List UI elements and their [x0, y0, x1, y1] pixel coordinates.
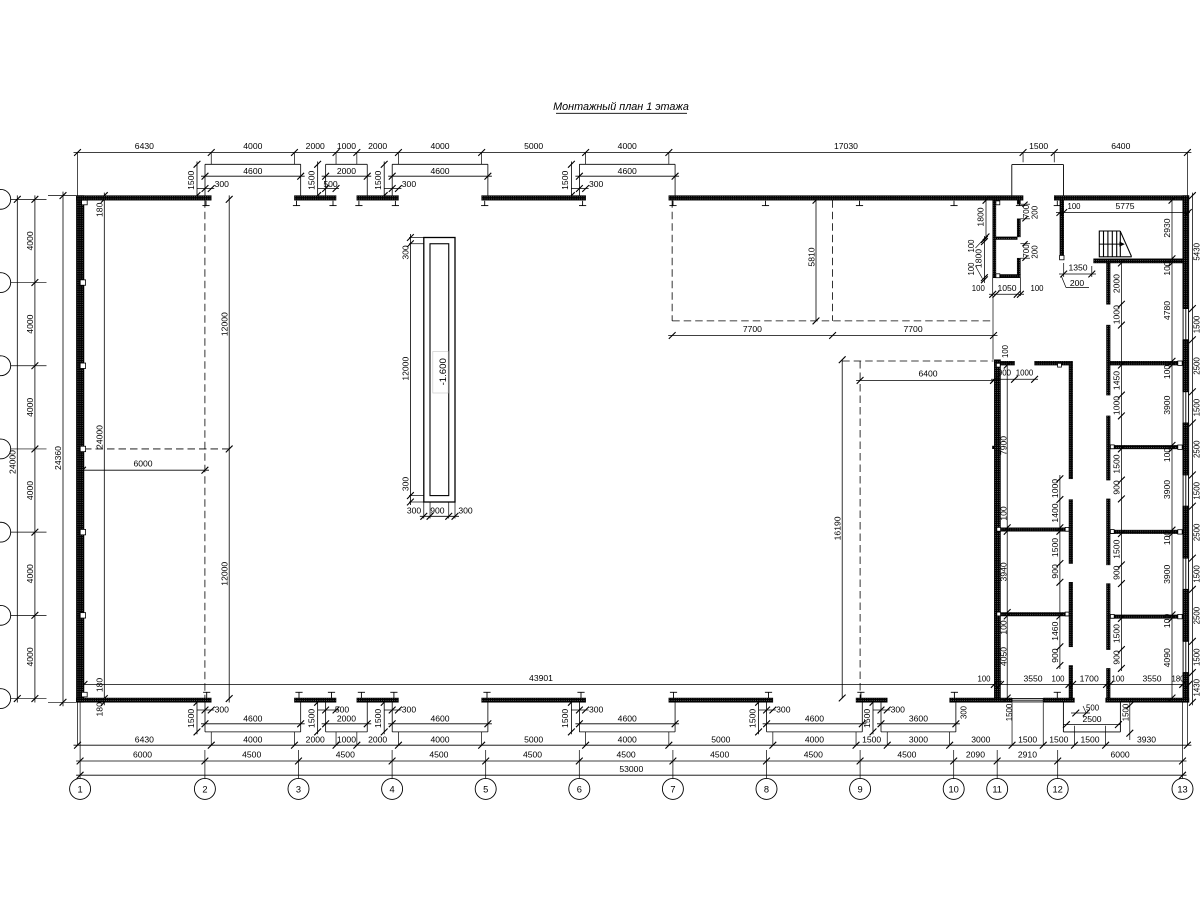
svg-text:2090: 2090 — [966, 750, 985, 760]
svg-text:300: 300 — [776, 704, 791, 714]
svg-text:1000: 1000 — [337, 141, 356, 151]
svg-text:2500: 2500 — [1192, 440, 1200, 458]
svg-text:6430: 6430 — [135, 141, 154, 151]
svg-text:2000: 2000 — [306, 734, 325, 744]
svg-text:Монтажный план 1 этажа: Монтажный план 1 этажа — [553, 101, 689, 113]
svg-text:1000: 1000 — [1112, 305, 1122, 324]
svg-text:1500: 1500 — [1050, 538, 1060, 557]
svg-text:4000: 4000 — [25, 647, 35, 666]
svg-text:1400: 1400 — [1050, 503, 1060, 522]
svg-text:180: 180 — [95, 202, 105, 217]
svg-text:4500: 4500 — [336, 750, 355, 760]
svg-text:100: 100 — [977, 674, 991, 683]
svg-text:2000: 2000 — [1112, 274, 1122, 293]
svg-text:-1.600: -1.600 — [438, 358, 449, 385]
svg-text:4780: 4780 — [1162, 301, 1172, 320]
svg-text:1350: 1350 — [1068, 262, 1087, 272]
svg-text:4600: 4600 — [618, 166, 637, 176]
svg-text:500: 500 — [335, 704, 350, 714]
svg-text:1500: 1500 — [1192, 481, 1200, 499]
svg-text:1450: 1450 — [1112, 371, 1122, 390]
svg-text:100: 100 — [1051, 674, 1065, 683]
svg-text:180: 180 — [95, 702, 105, 717]
svg-text:300: 300 — [215, 179, 230, 189]
svg-text:4000: 4000 — [618, 734, 637, 744]
svg-text:1430: 1430 — [1192, 678, 1200, 696]
svg-text:900: 900 — [1112, 480, 1122, 495]
svg-text:100: 100 — [972, 284, 986, 293]
svg-text:1500: 1500 — [1005, 703, 1014, 721]
svg-text:4000: 4000 — [25, 564, 35, 583]
svg-text:4600: 4600 — [243, 166, 262, 176]
svg-text:43901: 43901 — [529, 673, 553, 683]
svg-text:4090: 4090 — [1162, 648, 1172, 667]
svg-text:12: 12 — [1053, 784, 1063, 794]
svg-text:2500: 2500 — [1192, 357, 1200, 375]
svg-text:1460: 1460 — [1050, 621, 1060, 640]
svg-text:200: 200 — [1031, 205, 1040, 219]
svg-text:3900: 3900 — [1162, 565, 1172, 584]
svg-text:5000: 5000 — [524, 734, 543, 744]
svg-text:4000: 4000 — [243, 734, 262, 744]
svg-text:100: 100 — [1162, 531, 1172, 546]
svg-text:4000: 4000 — [618, 141, 637, 151]
svg-text:4000: 4000 — [25, 314, 35, 333]
svg-text:2930: 2930 — [1162, 218, 1172, 237]
svg-text:300: 300 — [401, 477, 411, 492]
svg-text:2000: 2000 — [337, 713, 356, 723]
svg-text:100: 100 — [1111, 674, 1125, 683]
svg-text:500: 500 — [1086, 704, 1100, 713]
svg-text:1500: 1500 — [1049, 734, 1068, 744]
svg-text:11: 11 — [992, 784, 1002, 794]
svg-text:4600: 4600 — [243, 713, 262, 723]
svg-text:4000: 4000 — [25, 231, 35, 250]
svg-text:1: 1 — [78, 784, 83, 794]
svg-text:2000: 2000 — [368, 734, 387, 744]
svg-text:4000: 4000 — [25, 398, 35, 417]
svg-text:4000: 4000 — [805, 734, 824, 744]
svg-text:2910: 2910 — [1018, 750, 1037, 760]
svg-text:1500: 1500 — [1029, 141, 1048, 151]
svg-text:300: 300 — [402, 179, 417, 189]
svg-text:5000: 5000 — [711, 734, 730, 744]
svg-text:4600: 4600 — [430, 166, 449, 176]
svg-text:1500: 1500 — [1192, 315, 1200, 333]
svg-text:4050: 4050 — [998, 647, 1008, 666]
svg-text:4500: 4500 — [523, 750, 542, 760]
svg-text:24360: 24360 — [53, 446, 63, 470]
svg-text:1500: 1500 — [306, 709, 316, 728]
svg-text:3940: 3940 — [998, 562, 1008, 581]
svg-text:1050: 1050 — [997, 283, 1016, 293]
svg-text:4600: 4600 — [430, 713, 449, 723]
svg-text:12000: 12000 — [220, 312, 230, 336]
svg-text:100: 100 — [1001, 344, 1010, 358]
svg-text:3: 3 — [296, 784, 301, 794]
svg-text:4600: 4600 — [805, 713, 824, 723]
svg-text:300: 300 — [589, 179, 604, 189]
svg-text:5000: 5000 — [524, 141, 543, 151]
svg-text:1500: 1500 — [862, 709, 872, 728]
svg-text:7700: 7700 — [743, 324, 762, 334]
svg-text:24000: 24000 — [94, 425, 104, 449]
svg-text:1500: 1500 — [1112, 624, 1122, 643]
svg-text:2500: 2500 — [1192, 523, 1200, 541]
svg-text:6400: 6400 — [1111, 141, 1130, 151]
svg-text:6000: 6000 — [1111, 750, 1130, 760]
svg-text:100: 100 — [1162, 261, 1172, 276]
svg-text:7700: 7700 — [903, 324, 922, 334]
svg-text:300: 300 — [960, 705, 969, 719]
svg-text:4000: 4000 — [430, 734, 449, 744]
svg-text:1000: 1000 — [1016, 369, 1034, 378]
svg-text:1500: 1500 — [186, 709, 196, 728]
svg-text:4500: 4500 — [804, 750, 823, 760]
svg-text:1500: 1500 — [1018, 734, 1037, 744]
svg-text:12000: 12000 — [401, 357, 411, 381]
svg-text:1500: 1500 — [373, 709, 383, 728]
svg-text:4000: 4000 — [243, 141, 262, 151]
svg-text:300: 300 — [458, 505, 473, 515]
svg-text:5430: 5430 — [1192, 242, 1200, 260]
svg-text:1500: 1500 — [1192, 565, 1200, 583]
svg-text:100: 100 — [1162, 448, 1172, 463]
svg-text:17030: 17030 — [834, 141, 858, 151]
svg-text:180: 180 — [1171, 674, 1185, 683]
svg-text:1500: 1500 — [560, 171, 570, 190]
svg-text:3550: 3550 — [1142, 673, 1161, 683]
svg-text:1500: 1500 — [1192, 398, 1200, 416]
svg-text:4500: 4500 — [242, 750, 261, 760]
svg-text:300: 300 — [402, 704, 417, 714]
svg-text:3900: 3900 — [1162, 480, 1172, 499]
svg-text:5: 5 — [483, 784, 488, 794]
svg-text:900: 900 — [430, 505, 445, 515]
svg-text:100: 100 — [1030, 284, 1044, 293]
svg-text:2: 2 — [202, 784, 207, 794]
svg-text:200: 200 — [1070, 278, 1085, 288]
svg-text:13: 13 — [1177, 784, 1187, 794]
svg-text:1500: 1500 — [1192, 648, 1200, 666]
svg-text:53000: 53000 — [619, 764, 643, 774]
svg-text:4500: 4500 — [710, 750, 729, 760]
svg-text:1500: 1500 — [747, 709, 757, 728]
svg-text:3550: 3550 — [1023, 673, 1042, 683]
svg-text:1000: 1000 — [1112, 396, 1122, 415]
svg-text:1500: 1500 — [306, 171, 316, 190]
svg-text:900: 900 — [1112, 565, 1122, 580]
svg-text:6: 6 — [577, 784, 582, 794]
svg-text:2500: 2500 — [1082, 714, 1101, 724]
svg-text:7900: 7900 — [998, 436, 1008, 455]
svg-text:3930: 3930 — [1137, 734, 1156, 744]
svg-text:100: 100 — [1162, 614, 1172, 629]
svg-text:6430: 6430 — [135, 734, 154, 744]
svg-text:100: 100 — [998, 506, 1008, 521]
svg-text:1500: 1500 — [862, 734, 881, 744]
svg-text:9: 9 — [858, 784, 863, 794]
svg-text:4600: 4600 — [618, 713, 637, 723]
svg-text:24000: 24000 — [8, 450, 18, 474]
svg-text:6000: 6000 — [133, 458, 152, 468]
svg-text:1000: 1000 — [1050, 479, 1060, 498]
svg-text:6000: 6000 — [133, 750, 152, 760]
svg-text:4500: 4500 — [429, 750, 448, 760]
svg-text:5775: 5775 — [1115, 201, 1134, 211]
svg-text:12000: 12000 — [220, 562, 230, 586]
svg-text:5810: 5810 — [806, 247, 816, 266]
svg-text:300: 300 — [891, 704, 906, 714]
svg-text:100: 100 — [967, 262, 976, 276]
svg-text:200: 200 — [1031, 245, 1040, 259]
svg-text:100: 100 — [998, 620, 1008, 635]
svg-text:4: 4 — [390, 784, 395, 794]
svg-text:16190: 16190 — [833, 516, 843, 540]
svg-text:1700: 1700 — [1080, 673, 1099, 683]
svg-text:4500: 4500 — [617, 750, 636, 760]
svg-text:2000: 2000 — [368, 141, 387, 151]
svg-text:900: 900 — [1050, 564, 1060, 579]
svg-text:10: 10 — [949, 784, 959, 794]
svg-text:300: 300 — [589, 704, 604, 714]
svg-text:3600: 3600 — [909, 713, 928, 723]
svg-text:1500: 1500 — [373, 171, 383, 190]
svg-text:1500: 1500 — [560, 709, 570, 728]
svg-text:2000: 2000 — [337, 166, 356, 176]
svg-text:4000: 4000 — [430, 141, 449, 151]
svg-text:1800: 1800 — [975, 207, 985, 226]
svg-text:300: 300 — [407, 505, 422, 515]
svg-text:4500: 4500 — [897, 750, 916, 760]
svg-text:300: 300 — [215, 704, 230, 714]
svg-text:3900: 3900 — [1162, 395, 1172, 414]
svg-text:7: 7 — [670, 784, 675, 794]
svg-text:900: 900 — [1112, 650, 1122, 665]
svg-text:4000: 4000 — [25, 481, 35, 500]
svg-text:500: 500 — [323, 179, 338, 189]
svg-text:1500: 1500 — [1112, 454, 1122, 473]
svg-text:300: 300 — [401, 245, 411, 260]
svg-text:1500: 1500 — [1112, 539, 1122, 558]
svg-text:900: 900 — [998, 369, 1012, 378]
svg-text:6400: 6400 — [918, 369, 937, 379]
svg-text:2000: 2000 — [306, 141, 325, 151]
svg-text:1500: 1500 — [1080, 734, 1099, 744]
svg-text:900: 900 — [1050, 648, 1060, 663]
svg-text:2500: 2500 — [1192, 606, 1200, 624]
svg-text:1500: 1500 — [186, 171, 196, 190]
svg-text:3000: 3000 — [971, 734, 990, 744]
svg-text:3000: 3000 — [909, 734, 928, 744]
svg-text:100: 100 — [1068, 202, 1082, 211]
svg-text:8: 8 — [764, 784, 769, 794]
svg-text:100: 100 — [1162, 365, 1172, 380]
svg-text:1000: 1000 — [337, 734, 356, 744]
svg-text:180: 180 — [95, 678, 105, 693]
